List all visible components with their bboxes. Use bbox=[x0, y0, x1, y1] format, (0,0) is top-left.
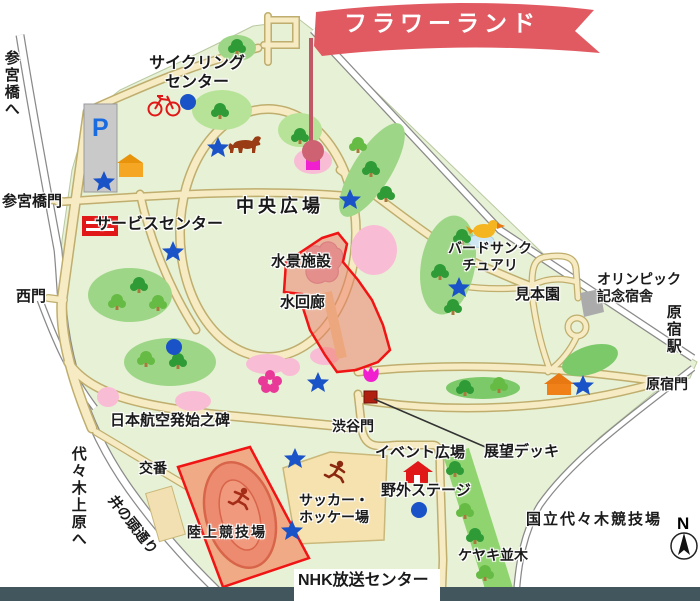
banner-title: フラワーランド bbox=[334, 10, 550, 37]
label-keyaki-row: ケヤキ並木 bbox=[458, 547, 528, 564]
label-yoyogi-uehara: 代々木上原へ bbox=[69, 446, 87, 548]
label-athletics-field: 陸上競技場 bbox=[187, 524, 267, 541]
label-sangubashi-gate: 参宮橋門 bbox=[2, 193, 62, 211]
label-service-center: サービスセンター bbox=[95, 216, 223, 235]
label-soccer-hockey: サッカー・ ホッケー場 bbox=[299, 492, 369, 525]
label-police-box: 交番 bbox=[139, 460, 167, 477]
park-map: フラワーランド サイクリング センター 参宮橋へ 参宮橋門 サービスセンター 西… bbox=[0, 0, 700, 601]
label-water-corridor: 水回廊 bbox=[280, 294, 325, 312]
label-national-stadium: 国立代々木競技場 bbox=[526, 511, 662, 529]
label-nhk-center: NHK放送センター bbox=[298, 572, 429, 591]
label-harajuku-station: 原宿駅 bbox=[664, 304, 682, 355]
label-outdoor-stage: 野外ステージ bbox=[381, 482, 471, 500]
label-aviation-monument: 日本航空発始之碑 bbox=[110, 412, 230, 430]
compass-north-label: N bbox=[677, 514, 689, 534]
label-cycling-center: サイクリング センター bbox=[141, 55, 253, 93]
label-shibuya-gate: 渋谷門 bbox=[332, 418, 374, 435]
shibuya-gate-icon bbox=[364, 391, 377, 403]
label-sangubashi-direction: 参宮橋へ bbox=[2, 50, 20, 118]
label-water-facility: 水景施設 bbox=[271, 253, 331, 271]
label-harajuku-gate: 原宿門 bbox=[646, 376, 688, 393]
label-bird-sanctuary: バードサンク チュアリ bbox=[434, 240, 546, 273]
label-sample-garden: 見本園 bbox=[515, 286, 560, 304]
parking-icon: P bbox=[92, 114, 109, 144]
label-west-gate: 西門 bbox=[16, 288, 46, 306]
label-olympic-lodge: オリンピック 記念宿舎 bbox=[597, 271, 681, 304]
label-event-plaza: イベント広場 bbox=[375, 444, 465, 462]
label-observation-deck: 展望デッキ bbox=[484, 443, 559, 461]
label-central-plaza: 中央広場 bbox=[236, 196, 324, 217]
compass bbox=[671, 533, 697, 559]
